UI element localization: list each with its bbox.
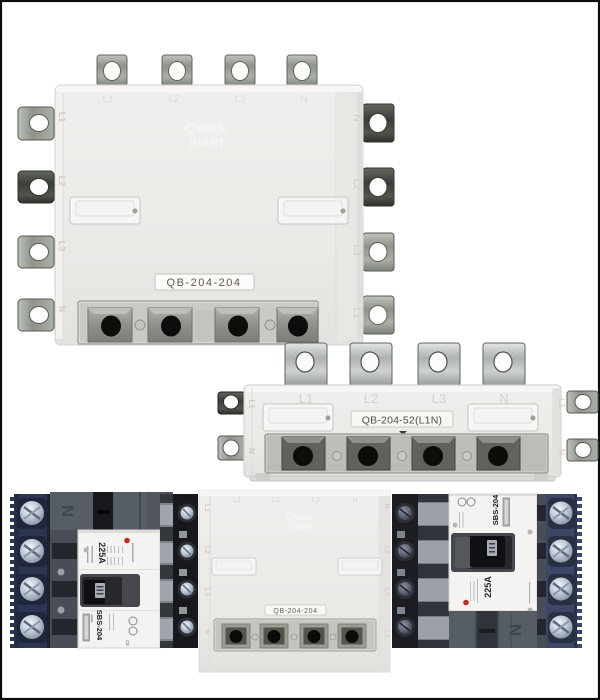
svg-text:L1: L1 xyxy=(247,399,256,409)
svg-text:L3: L3 xyxy=(234,94,246,105)
svg-text:CE: CE xyxy=(125,640,130,646)
svg-text:L2: L2 xyxy=(364,391,378,406)
svg-text:N: N xyxy=(506,624,525,636)
svg-text:L2: L2 xyxy=(203,546,210,554)
svg-text:N: N xyxy=(557,449,567,456)
svg-text:Quick: Quick xyxy=(185,120,227,137)
svg-text:L1: L1 xyxy=(557,398,567,408)
svg-text:N: N xyxy=(351,114,362,121)
svg-text:L1: L1 xyxy=(203,504,210,512)
svg-text:N: N xyxy=(58,505,77,517)
svg-text:L2: L2 xyxy=(272,497,280,504)
svg-text:L2: L2 xyxy=(351,178,362,190)
svg-text:N: N xyxy=(247,448,256,454)
svg-text:Quick: Quick xyxy=(286,512,314,523)
svg-text:L2: L2 xyxy=(383,546,390,554)
svg-text:L1: L1 xyxy=(57,112,67,123)
svg-text:[BAR]: [BAR] xyxy=(289,523,312,532)
svg-text:L3: L3 xyxy=(383,588,390,596)
svg-text:QB-204-204: QB-204-204 xyxy=(273,608,317,615)
svg-text:L2: L2 xyxy=(168,94,180,105)
svg-text:L3: L3 xyxy=(351,244,362,256)
svg-text:[BAR]: [BAR] xyxy=(189,136,223,150)
svg-text:L2: L2 xyxy=(57,176,67,187)
svg-text:N: N xyxy=(300,94,307,105)
svg-text:L1: L1 xyxy=(351,307,362,319)
svg-text:QB-204-204: QB-204-204 xyxy=(167,277,242,289)
svg-text:L3: L3 xyxy=(312,497,320,504)
svg-text:N: N xyxy=(57,306,67,313)
svg-text:N: N xyxy=(383,503,390,508)
svg-text:SBS-204: SBS-204 xyxy=(491,494,500,525)
svg-text:L1: L1 xyxy=(102,94,114,105)
svg-text:N: N xyxy=(203,629,210,634)
svg-text:L1: L1 xyxy=(383,630,390,638)
svg-text:L3: L3 xyxy=(203,588,210,596)
svg-text:225A: 225A xyxy=(97,542,107,564)
svg-text:N: N xyxy=(352,497,357,504)
svg-text:L1: L1 xyxy=(233,497,241,504)
svg-text:225A: 225A xyxy=(483,576,493,598)
svg-text:QB-204-52(L1N): QB-204-52(L1N) xyxy=(362,415,442,427)
svg-text:SBS-204: SBS-204 xyxy=(95,610,104,641)
svg-text:L3: L3 xyxy=(432,391,446,406)
svg-text:L3: L3 xyxy=(57,241,67,252)
